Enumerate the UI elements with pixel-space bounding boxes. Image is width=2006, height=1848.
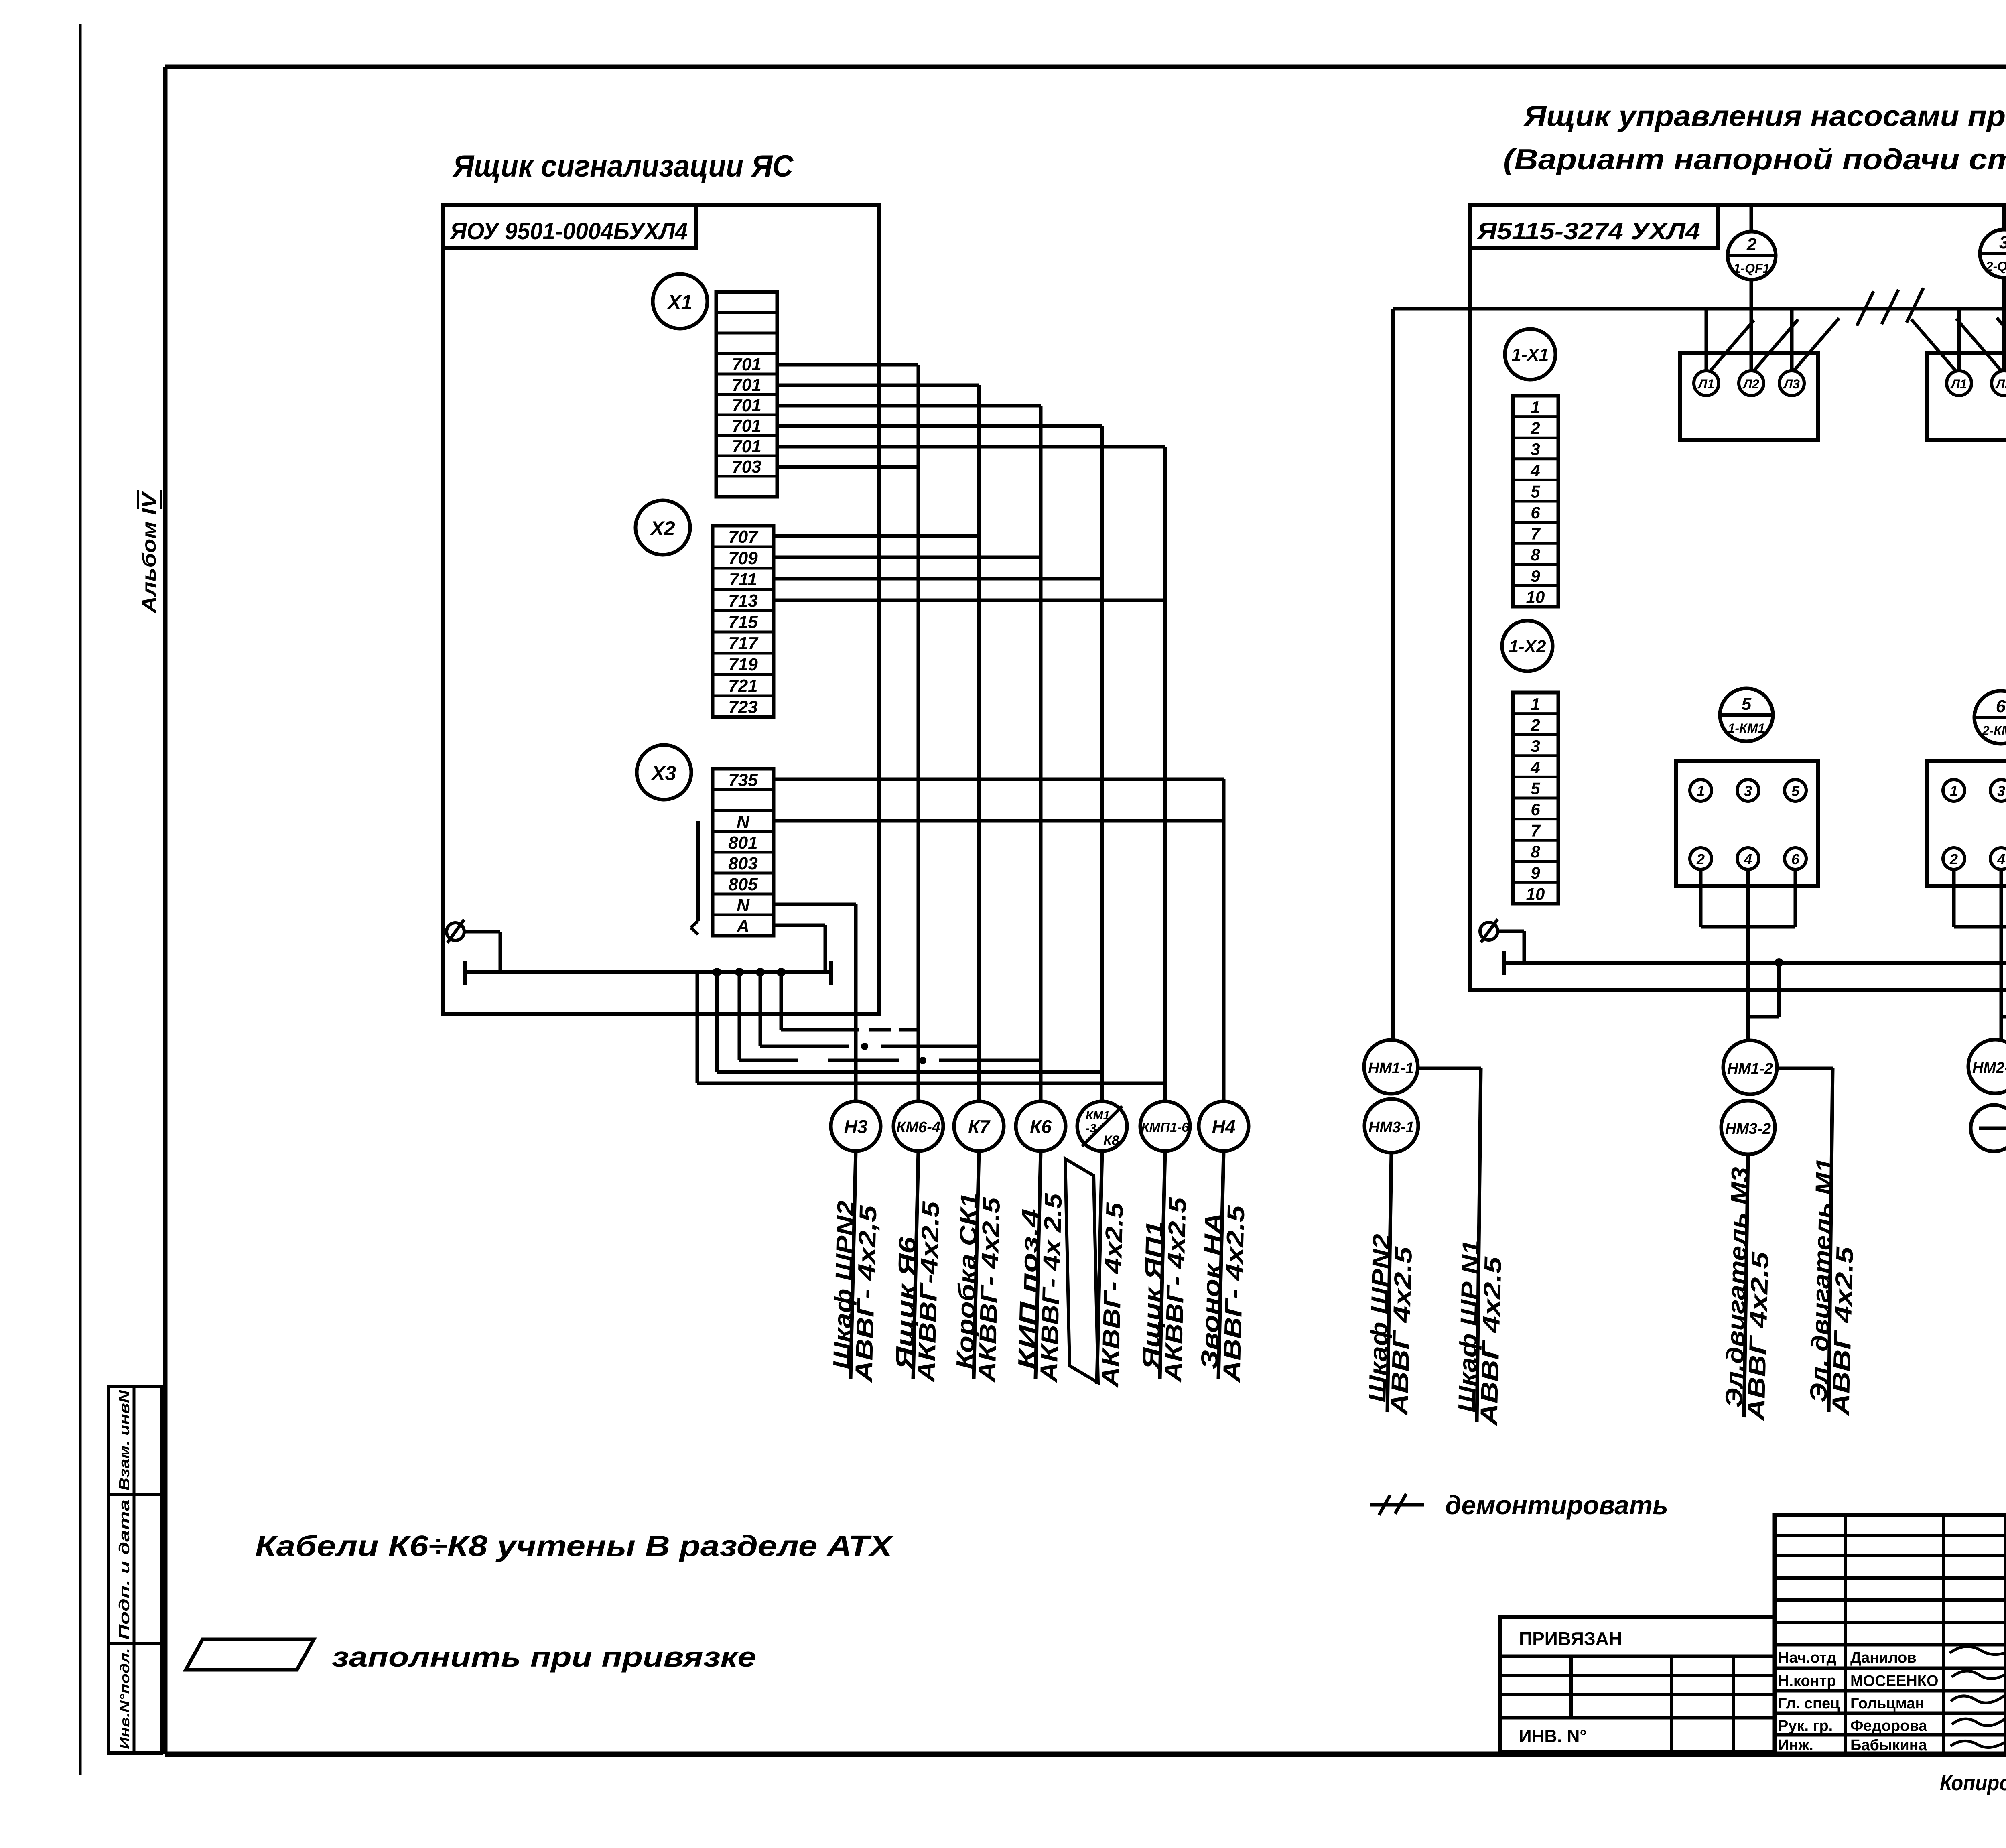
svg-text:N: N xyxy=(737,812,750,832)
svg-text:АВВГ- 4х2,5: АВВГ- 4х2,5 xyxy=(850,1204,882,1383)
svg-text:(Вариант напорной подачи: (Вариант напорной подачи сточной воды. xyxy=(1503,144,2006,176)
svg-text:3: 3 xyxy=(1997,783,2005,799)
svg-text:717: 717 xyxy=(728,634,759,653)
svg-text:10: 10 xyxy=(1526,587,1545,606)
svg-text:АВВГ 4х2.5: АВВГ 4х2.5 xyxy=(1742,1251,1774,1422)
svg-text:3: 3 xyxy=(1744,783,1752,799)
svg-text:НМ1-1: НМ1-1 xyxy=(1368,1060,1414,1077)
svg-text:9: 9 xyxy=(1531,863,1540,882)
svg-text:4: 4 xyxy=(1744,851,1752,867)
svg-text:713: 713 xyxy=(728,591,757,611)
svg-text:демонтировать: демонтировать xyxy=(1445,1490,1668,1520)
svg-text:АКВВГ- 4х2.5: АКВВГ- 4х2.5 xyxy=(1096,1202,1128,1389)
svg-text:2-КМ1: 2-КМ1 xyxy=(1982,723,2006,738)
svg-text:4: 4 xyxy=(1997,851,2005,867)
svg-text:Я5115-3274 УХЛ4: Я5115-3274 УХЛ4 xyxy=(1476,218,1700,244)
svg-text:8: 8 xyxy=(1531,545,1540,564)
svg-text:801: 801 xyxy=(728,833,757,853)
svg-text:5: 5 xyxy=(1742,694,1752,714)
svg-text:9: 9 xyxy=(1531,567,1540,585)
svg-text:Кабели К6÷К8 учтены В раз: Кабели К6÷К8 учтены В разделе АТХ xyxy=(255,1530,894,1562)
svg-text:7: 7 xyxy=(1531,524,1541,543)
svg-text:711: 711 xyxy=(729,570,757,589)
svg-text:721: 721 xyxy=(728,676,757,696)
svg-text:7: 7 xyxy=(1531,821,1541,840)
svg-text:723: 723 xyxy=(728,697,757,717)
svg-text:701: 701 xyxy=(732,437,761,456)
svg-text:Копировал:: Копировал: xyxy=(1940,1771,2006,1795)
svg-text:Л2: Л2 xyxy=(1742,377,1759,391)
svg-text:6: 6 xyxy=(1531,503,1540,522)
svg-text:Рук. гр.: Рук. гр. xyxy=(1778,1718,1833,1734)
svg-text:X1: X1 xyxy=(666,291,692,313)
svg-text:701: 701 xyxy=(732,416,761,436)
svg-text:ЯОУ 9501-0004БУХЛ4: ЯОУ 9501-0004БУХЛ4 xyxy=(449,218,688,244)
svg-text:735: 735 xyxy=(728,770,758,790)
svg-text:701: 701 xyxy=(732,355,761,374)
svg-text:НМ3-2: НМ3-2 xyxy=(1725,1121,1771,1137)
svg-text:6: 6 xyxy=(1531,800,1540,819)
svg-text:1: 1 xyxy=(1950,783,1958,799)
svg-text:1-X2: 1-X2 xyxy=(1509,637,1546,656)
svg-text:Альбом IV: Альбом IV xyxy=(139,491,160,613)
svg-text:Л1: Л1 xyxy=(1950,377,1967,391)
svg-text:Нач.отд: Нач.отд xyxy=(1778,1649,1836,1666)
svg-text:Ящик управления насосами: Ящик управления насосами промывной воды … xyxy=(1523,100,2006,132)
svg-text:Инж.: Инж. xyxy=(1778,1737,1813,1754)
svg-text:719: 719 xyxy=(728,655,758,674)
svg-text:Н.контр: Н.контр xyxy=(1778,1673,1836,1690)
svg-text:1-КМ1: 1-КМ1 xyxy=(1728,721,1765,735)
svg-text:A: A xyxy=(736,916,749,936)
svg-text:Ящик сигнализации ЯС: Ящик сигнализации ЯС xyxy=(452,149,794,183)
svg-text:Бабыкина: Бабыкина xyxy=(1850,1737,1927,1754)
svg-text:НМ2-2: НМ2-2 xyxy=(1972,1060,2006,1076)
svg-text:2: 2 xyxy=(1696,851,1705,867)
svg-text:КМП1-6: КМП1-6 xyxy=(1141,1120,1189,1135)
svg-text:2: 2 xyxy=(1530,716,1540,735)
svg-text:1-QF1: 1-QF1 xyxy=(1734,261,1770,276)
svg-text:3: 3 xyxy=(1999,233,2006,252)
svg-text:701: 701 xyxy=(732,375,761,395)
svg-text:805: 805 xyxy=(728,875,758,894)
svg-text:ИНВ. N°: ИНВ. N° xyxy=(1519,1726,1587,1746)
svg-text:707: 707 xyxy=(728,527,759,547)
svg-text:1: 1 xyxy=(1697,783,1705,799)
svg-text:2: 2 xyxy=(1530,419,1540,438)
svg-text:Н4: Н4 xyxy=(1212,1116,1236,1137)
svg-text:2-QF1: 2-QF1 xyxy=(1986,259,2006,274)
svg-text:2: 2 xyxy=(1746,235,1757,254)
svg-text:АВВГ- 4х2.5: АВВГ- 4х2.5 xyxy=(1218,1204,1250,1383)
svg-text:4: 4 xyxy=(1530,758,1540,777)
svg-text:1: 1 xyxy=(1531,398,1540,416)
svg-text:Н3: Н3 xyxy=(844,1116,868,1137)
svg-text:АКВВГ- 4х2.5: АКВВГ- 4х2.5 xyxy=(973,1196,1005,1383)
svg-text:АВВГ 4х2.5: АВВГ 4х2.5 xyxy=(1386,1246,1417,1417)
svg-text:X2: X2 xyxy=(649,517,675,540)
svg-text:К8: К8 xyxy=(1103,1133,1119,1148)
svg-text:6: 6 xyxy=(1996,697,2006,716)
svg-text:709: 709 xyxy=(728,548,758,568)
svg-text:8: 8 xyxy=(1531,842,1540,861)
svg-text:-3: -3 xyxy=(1086,1122,1096,1135)
svg-text:Л1: Л1 xyxy=(1697,377,1714,391)
svg-text:АКВВГ- 4х 2.5: АКВВГ- 4х 2.5 xyxy=(1035,1192,1067,1383)
svg-text:КМ1-: КМ1- xyxy=(1086,1109,1114,1122)
svg-text:701: 701 xyxy=(732,396,761,415)
svg-text:Гольцман: Гольцман xyxy=(1850,1695,1924,1712)
svg-text:X3: X3 xyxy=(650,762,676,784)
svg-text:2: 2 xyxy=(1949,851,1958,867)
svg-text:1: 1 xyxy=(1531,695,1540,713)
svg-text:ПРИВЯЗАН: ПРИВЯЗАН xyxy=(1519,1628,1622,1649)
svg-text:N: N xyxy=(737,896,750,915)
svg-text:НМ3-1: НМ3-1 xyxy=(1368,1119,1414,1136)
svg-text:Л3: Л3 xyxy=(1783,377,1800,391)
svg-text:6: 6 xyxy=(1791,851,1800,867)
svg-text:Л2: Л2 xyxy=(1995,377,2006,391)
svg-text:1-X1: 1-X1 xyxy=(1512,345,1549,365)
svg-text:Взам. инвN: Взам. инвN xyxy=(116,1390,132,1491)
svg-text:703: 703 xyxy=(732,457,761,477)
svg-text:5: 5 xyxy=(1791,783,1800,799)
svg-text:4: 4 xyxy=(1530,461,1540,480)
svg-text:АВВГ 4х2.5: АВВГ 4х2.5 xyxy=(1475,1256,1507,1427)
svg-text:МОСЕЕНКО: МОСЕЕНКО xyxy=(1850,1673,1939,1690)
svg-text:К6: К6 xyxy=(1030,1116,1052,1137)
svg-text:К7: К7 xyxy=(968,1116,991,1137)
svg-text:АВВГ 4х2.5: АВВГ 4х2.5 xyxy=(1827,1246,1858,1417)
svg-text:НМ1-2: НМ1-2 xyxy=(1727,1060,1773,1077)
svg-text:Гл. спец: Гл. спец xyxy=(1778,1695,1840,1712)
svg-text:Данилов: Данилов xyxy=(1850,1649,1917,1666)
svg-text:Федорова: Федорова xyxy=(1850,1718,1927,1734)
svg-text:10: 10 xyxy=(1526,884,1545,903)
svg-text:АКВВГ-4х2.5: АКВВГ-4х2.5 xyxy=(913,1200,944,1383)
svg-text:Подп. и дата: Подп. и дата xyxy=(116,1499,132,1640)
svg-text:5: 5 xyxy=(1531,779,1540,798)
svg-text:КМ6-4: КМ6-4 xyxy=(896,1119,940,1136)
svg-text:АКВВГ- 4х2.5: АКВВГ- 4х2.5 xyxy=(1159,1196,1191,1383)
svg-text:заполнить при привязке: заполнить при привязке xyxy=(332,1641,756,1673)
svg-text:3: 3 xyxy=(1531,440,1540,459)
svg-text:803: 803 xyxy=(728,854,757,873)
svg-text:3: 3 xyxy=(1531,737,1540,755)
svg-text:Инв.N°подл.: Инв.N°подл. xyxy=(118,1648,132,1749)
svg-text:5: 5 xyxy=(1531,482,1540,501)
svg-text:715: 715 xyxy=(728,612,758,632)
